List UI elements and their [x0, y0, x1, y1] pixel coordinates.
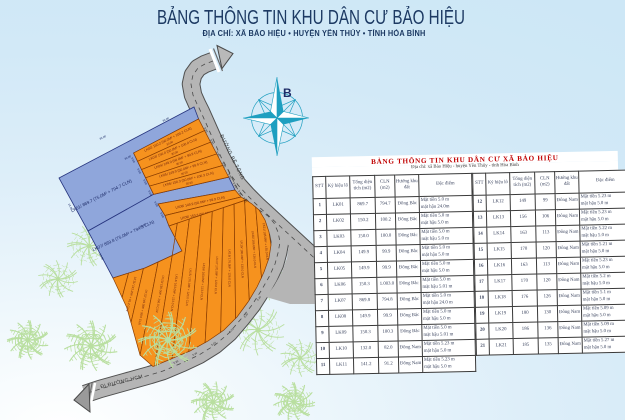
svg-text:B: B	[283, 86, 292, 100]
svg-text:LK18/ 176.0M² + 126.0 CLN: LK18/ 176.0M² + 126.0 CLN	[227, 249, 231, 286]
svg-text:35.00: 35.00	[99, 134, 107, 141]
